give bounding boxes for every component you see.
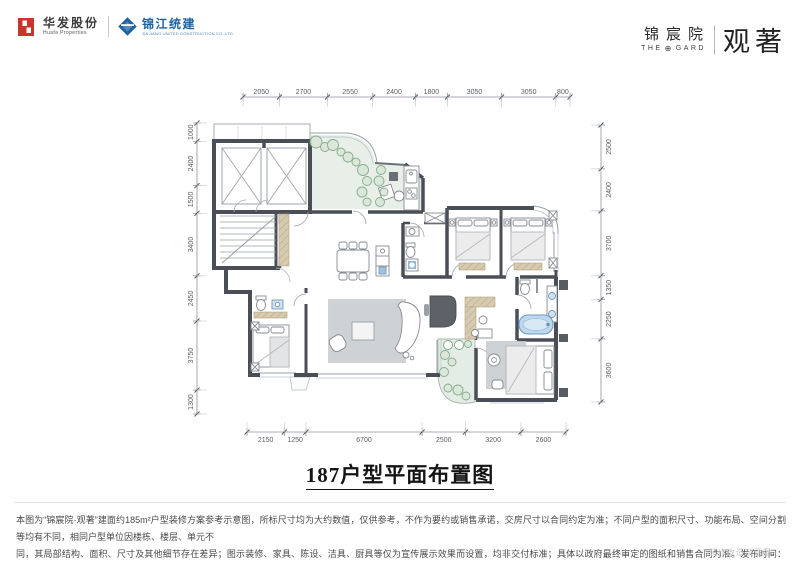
svg-text:2450: 2450 <box>188 291 195 307</box>
svg-text:3050: 3050 <box>467 89 483 96</box>
footer-divider <box>14 502 786 503</box>
svg-text:2500: 2500 <box>436 437 452 444</box>
svg-text:3400: 3400 <box>188 237 195 253</box>
svg-text:2150: 2150 <box>258 437 274 444</box>
svg-text:2400: 2400 <box>188 156 195 172</box>
svg-text:2400: 2400 <box>386 89 402 96</box>
disclaimer: 本图为“锦宸院·观著”建面约185m²户型装修方案参考示意图，所标尺寸均为大约数… <box>16 512 786 566</box>
plan-title: 187户型平面布置图 <box>0 459 800 489</box>
watermark: 装修改造示意图 <box>709 547 772 558</box>
svg-text:1000: 1000 <box>188 124 195 140</box>
svg-text:2500: 2500 <box>606 139 613 155</box>
svg-text:1300: 1300 <box>188 394 195 410</box>
svg-text:1350: 1350 <box>606 280 613 296</box>
svg-text:6700: 6700 <box>356 437 372 444</box>
svg-text:2400: 2400 <box>606 182 613 198</box>
svg-text:2700: 2700 <box>296 89 312 96</box>
svg-text:1500: 1500 <box>188 192 195 208</box>
svg-text:2600: 2600 <box>536 437 552 444</box>
stairs-and-elevators <box>220 148 306 263</box>
svg-text:3700: 3700 <box>606 235 613 251</box>
svg-text:2250: 2250 <box>606 311 613 327</box>
svg-text:3200: 3200 <box>485 437 501 444</box>
svg-text:2550: 2550 <box>342 89 358 96</box>
svg-text:3600: 3600 <box>606 363 613 379</box>
svg-text:3050: 3050 <box>521 89 537 96</box>
svg-text:3750: 3750 <box>188 348 195 364</box>
page: 华发股份 Huafa Properties 锦江统建 JINJIANG UNIT… <box>0 0 800 566</box>
disclaimer-line2: 同，其局部结构、面积、尺寸及其他细节存在差异；图示装修、家具、陈设、洁具、厨具等… <box>16 546 786 566</box>
svg-text:1250: 1250 <box>287 437 303 444</box>
svg-text:1800: 1800 <box>424 89 440 96</box>
svg-text:800: 800 <box>557 89 569 96</box>
ac-units <box>559 280 568 397</box>
disclaimer-line1: 本图为“锦宸院·观著”建面约185m²户型装修方案参考示意图，所标尺寸均为大约数… <box>16 512 786 546</box>
svg-text:2050: 2050 <box>253 89 269 96</box>
